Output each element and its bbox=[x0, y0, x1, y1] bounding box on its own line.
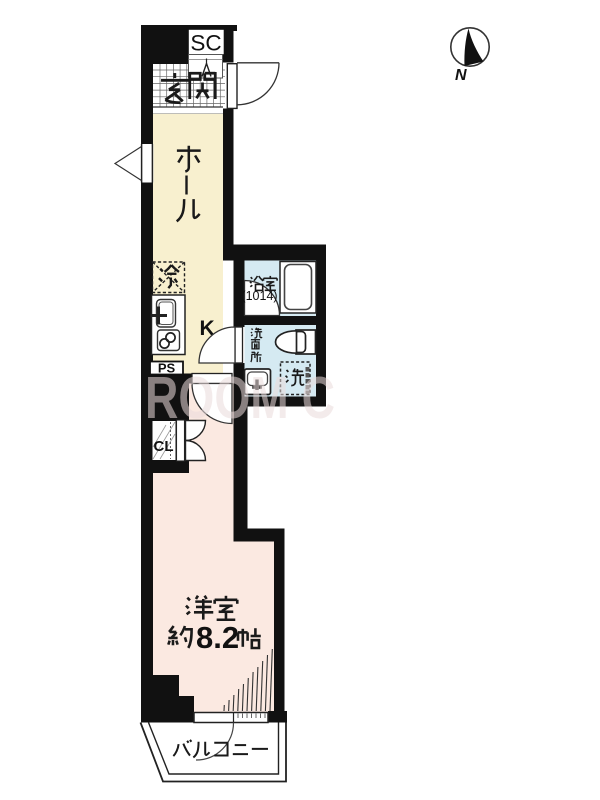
svg-text:ROOM C: ROOM C bbox=[145, 365, 335, 431]
svg-text:8.2: 8.2 bbox=[196, 620, 239, 655]
svg-text:SC: SC bbox=[190, 31, 221, 56]
svg-text:(1014): (1014) bbox=[241, 289, 277, 303]
svg-text:N: N bbox=[455, 67, 467, 84]
svg-text:CL: CL bbox=[154, 438, 174, 455]
